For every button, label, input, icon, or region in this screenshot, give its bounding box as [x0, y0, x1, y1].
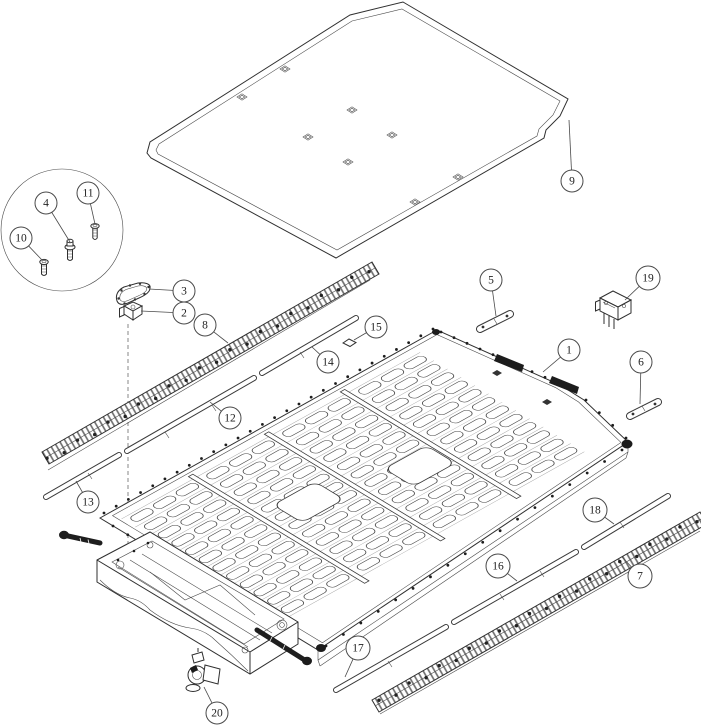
callout-number: 10 [15, 233, 27, 245]
callout-number: 20 [211, 708, 223, 720]
leader-line [52, 212, 70, 242]
callout-18: 18 [583, 498, 614, 524]
strip-6 [630, 402, 658, 416]
callout-14: 14 [312, 347, 339, 373]
callout-4: 4 [35, 192, 70, 242]
callout-number: 2 [181, 308, 187, 320]
bolt-11 [91, 224, 99, 240]
clip-15 [343, 339, 356, 347]
callout-19: 19 [625, 266, 660, 300]
callout-9: 9 [561, 120, 583, 192]
callout-number: 11 [82, 188, 93, 200]
callout-12: 12 [210, 402, 241, 429]
callout-number: 13 [82, 497, 94, 509]
callout-8: 8 [194, 314, 228, 343]
leader-line [354, 333, 367, 340]
leader-line [569, 120, 571, 170]
callout-1: 1 [543, 339, 580, 372]
callout-13: 13 [76, 481, 99, 513]
callout-10: 10 [10, 227, 42, 260]
callout-number: 18 [589, 505, 601, 517]
leader-line [625, 286, 639, 300]
callout-number: 7 [637, 571, 643, 583]
leader-line [29, 246, 42, 260]
leader-line [76, 481, 83, 492]
callout-3: 3 [149, 280, 195, 302]
corner-grommet-north [432, 329, 440, 335]
callout-number: 4 [43, 198, 49, 210]
corner-grommet-east [622, 440, 633, 449]
leader-line [605, 517, 614, 524]
callout-number: 6 [638, 357, 644, 369]
bolt-4 [65, 239, 75, 260]
top-cover-panel [147, 2, 568, 258]
callout-number: 5 [488, 275, 494, 287]
leader-line [204, 687, 212, 703]
callout-number: 8 [202, 320, 208, 332]
strip-5 [480, 314, 510, 329]
leader-line [90, 204, 95, 224]
callout-number: 15 [370, 322, 382, 334]
leader-line [312, 347, 320, 354]
leader-line [345, 659, 353, 677]
callout-16: 16 [486, 554, 517, 581]
callout-15: 15 [354, 316, 387, 340]
callout-number: 16 [492, 561, 504, 573]
callout-number: 14 [322, 357, 334, 369]
callout-number: 19 [642, 273, 654, 285]
callout-20: 20 [204, 687, 228, 724]
callout-number: 12 [224, 413, 236, 425]
leader-line [640, 373, 641, 404]
callout-6: 6 [630, 351, 652, 404]
callout-number: 9 [569, 176, 575, 188]
callout-number: 1 [566, 345, 572, 357]
leader-line [141, 311, 173, 312]
callout-number: 3 [181, 286, 187, 298]
corner-grommet-south [316, 644, 326, 652]
diagram-canvas: 1234567891011121314151617181920 [0, 0, 701, 725]
module-bolt-front [59, 531, 100, 544]
callout-11: 11 [77, 182, 99, 224]
leader-line [214, 332, 228, 343]
callout-5: 5 [480, 269, 502, 316]
leader-line [507, 573, 517, 581]
callout-number: 17 [352, 643, 364, 655]
callout-2: 2 [141, 302, 195, 324]
gasket-seal [116, 283, 150, 305]
leader-line [543, 357, 561, 372]
bolt-10 [40, 259, 48, 275]
mount-bracket-19 [596, 291, 632, 329]
leader-line [493, 291, 496, 316]
coolant-valve-20 [186, 648, 220, 692]
leader-line [149, 289, 173, 290]
